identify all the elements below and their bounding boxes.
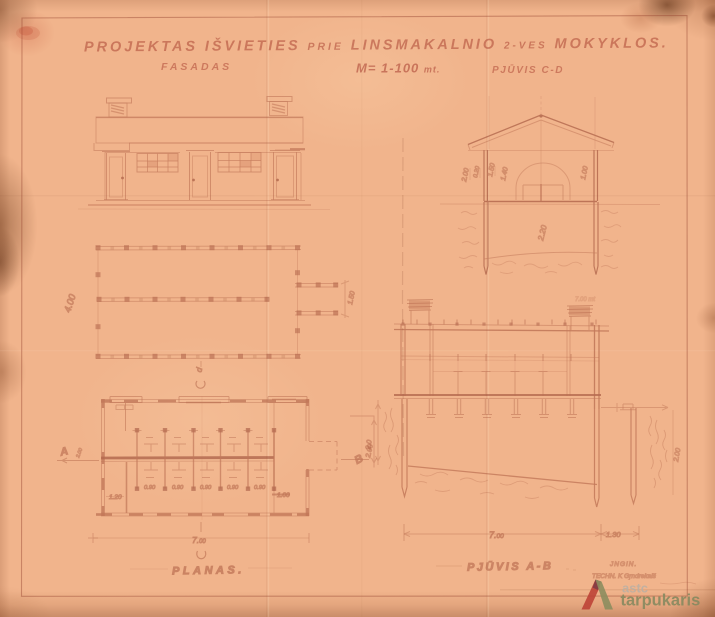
svg-text:M= 1-100 mt.: M= 1-100 mt. [356, 61, 440, 76]
svg-text:PJŪVIS C-D: PJŪVIS C-D [492, 64, 564, 76]
svg-text:FASADAS: FASADAS [161, 61, 232, 73]
svg-text:2.00: 2.00 [461, 168, 471, 184]
svg-text:1.40: 1.40 [500, 167, 510, 182]
svg-text:0.90: 0.90 [144, 485, 156, 491]
svg-text:1.50: 1.50 [347, 291, 357, 306]
svg-text:tarpukaris: tarpukaris [621, 592, 701, 610]
svg-text:2.00: 2.00 [673, 448, 682, 464]
svg-text:1.00: 1.00 [580, 166, 590, 181]
svg-text:PJŪVIS A-B: PJŪVIS A-B [467, 560, 554, 574]
svg-text:7.00 mt: 7.00 mt [575, 297, 595, 303]
svg-text:2.00: 2.00 [75, 447, 84, 459]
svg-text:7.00: 7.00 [489, 530, 504, 540]
svg-text:0.90: 0.90 [227, 485, 239, 491]
svg-text:JNGIN.: JNGIN. [609, 561, 637, 568]
svg-text:7.00: 7.00 [192, 535, 206, 545]
svg-text:PROJEKTAS IŠVIETIES PRIE LINSM: PROJEKTAS IŠVIETIES PRIE LINSMAKALNIO 2-… [84, 33, 667, 55]
svg-text:d: d [195, 366, 205, 372]
svg-text:B: B [353, 453, 366, 467]
svg-text:A: A [58, 445, 69, 459]
svg-text:PLANAS.: PLANAS. [172, 564, 245, 577]
svg-text:0.90: 0.90 [200, 485, 212, 491]
svg-text:1.20: 1.20 [109, 494, 122, 501]
svg-text:2.20: 2.20 [536, 224, 549, 243]
svg-text:0.90: 0.90 [172, 485, 184, 491]
svg-text:0.90: 0.90 [254, 485, 266, 491]
svg-text:4.00: 4.00 [62, 292, 78, 314]
svg-text:1.30: 1.30 [606, 530, 621, 539]
svg-text:1.00: 1.00 [277, 492, 290, 499]
svg-text:TECHN. K Gŗndrekaiš: TECHN. K Gŗndrekaiš [592, 573, 657, 580]
